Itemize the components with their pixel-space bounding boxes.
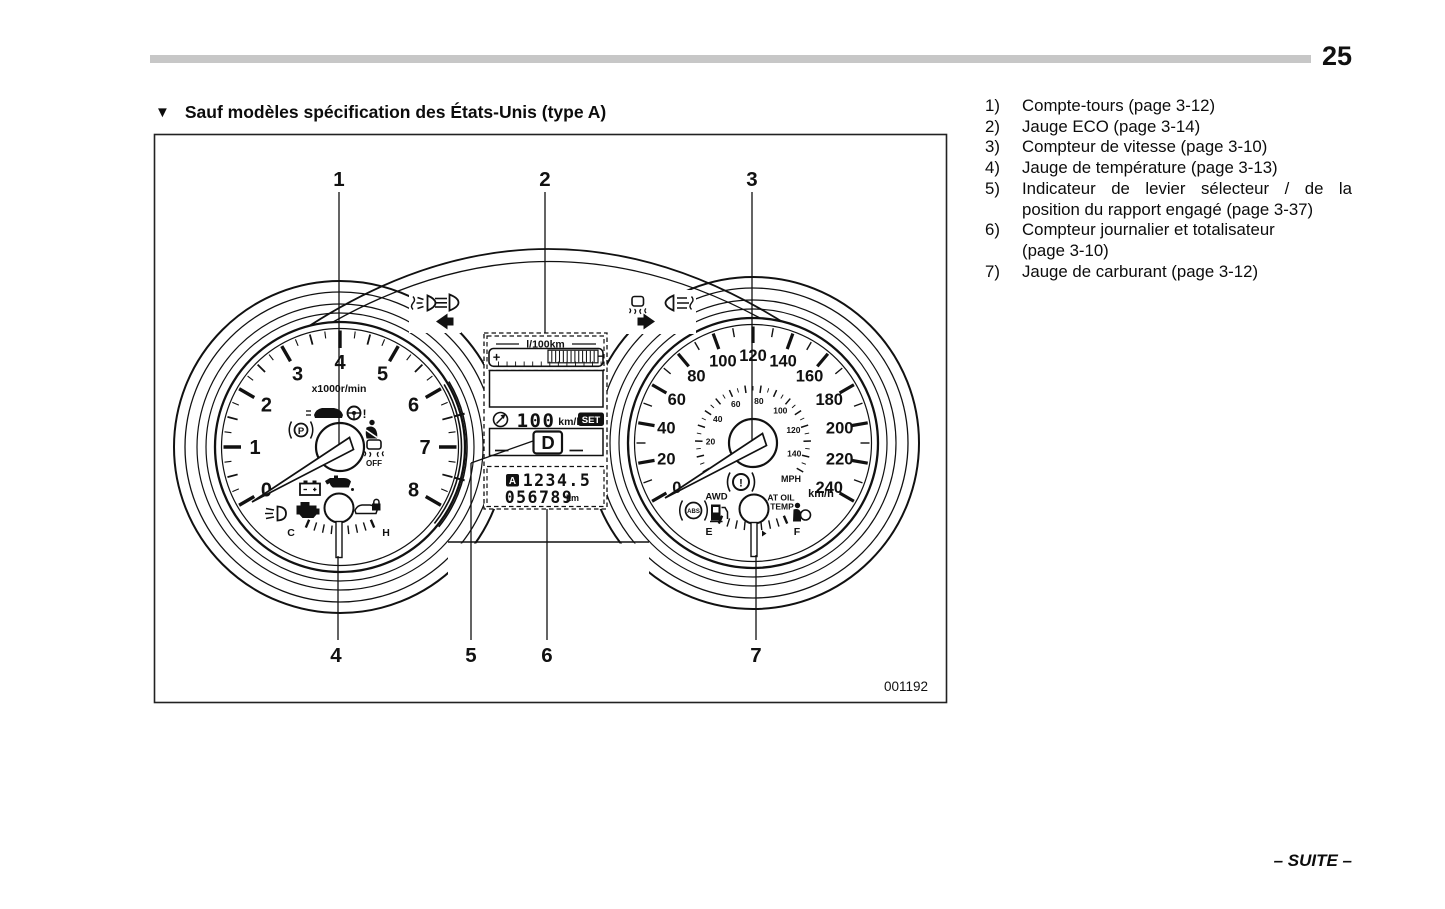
fuel-gauge-full-label: F [794,526,801,538]
center-display: l/100km + − 100 km/h SET D A 1234.5 0567… [484,333,607,509]
callout-3: 3 [746,168,757,191]
instrument-cluster-figure: 012345678 020406080100120140160180200220… [0,0,1445,909]
callout-2: 2 [539,168,550,191]
svg-text:100: 100 [709,352,737,370]
fuel-gauge-stem [751,523,757,557]
svg-text:!: ! [739,478,743,490]
figure-code: 001192 [884,679,928,694]
svg-text:7: 7 [419,437,430,459]
svg-text:80: 80 [687,368,705,386]
svg-text:20: 20 [657,450,675,468]
odometer-unit: km [566,493,579,503]
odometer-value: 056789 [505,488,574,507]
svg-text:ABS: ABS [687,509,700,515]
svg-text:140: 140 [787,448,801,458]
svg-text:3: 3 [292,363,303,385]
svg-text:20: 20 [706,437,716,447]
temp-gauge-cold-label: C [287,527,295,539]
callout-6: 6 [541,644,552,667]
eco-plus-label: + [493,350,501,365]
svg-text:40: 40 [713,414,723,424]
indicator-area-left [409,288,461,333]
temp-gauge-center-cap [325,494,354,523]
svg-text:1: 1 [249,437,260,459]
fuel-gauge-empty-label: E [705,526,712,538]
temp-gauge-stem [336,522,342,558]
svg-text:40: 40 [657,420,675,438]
svg-text:80: 80 [754,396,764,406]
svg-text:220: 220 [826,450,854,468]
svg-text:60: 60 [731,399,741,409]
svg-text:160: 160 [796,368,824,386]
svg-text:180: 180 [815,391,843,409]
callout-1: 1 [333,168,344,191]
svg-text:8: 8 [408,480,419,502]
callout-7: 7 [750,644,761,667]
vdc-off-label: OFF [366,459,382,468]
svg-text:4: 4 [334,352,346,374]
display-blank-window [490,371,604,408]
svg-text:6: 6 [408,395,419,417]
svg-text:200: 200 [826,420,854,438]
callout-5: 5 [465,644,476,667]
svg-text:140: 140 [769,352,797,370]
callout-4: 4 [330,644,342,667]
housing-bridge-gap [448,544,649,701]
svg-text:2: 2 [261,395,272,417]
svg-text:60: 60 [668,391,686,409]
set-badge-label: SET [582,415,601,426]
svg-text:100: 100 [773,405,787,415]
trip-meter-badge-label: A [509,476,516,487]
svg-text:120: 120 [786,425,800,435]
speedometer-kmh-label: km/h [808,488,834,500]
svg-text:P: P [298,426,305,437]
svg-text:5: 5 [377,363,388,385]
at-oil-temp-label: TEMP [770,502,794,512]
svg-text:!: ! [363,409,367,421]
awd-label: AWD [705,492,727,503]
cluster-housing-outline [300,249,792,332]
fuel-gauge-center-cap [740,495,769,524]
speedometer-mph-label: MPH [781,474,801,484]
svg-text:120: 120 [739,347,767,365]
temp-gauge-hot-label: H [382,527,390,539]
gear-position-value: D [541,432,554,453]
